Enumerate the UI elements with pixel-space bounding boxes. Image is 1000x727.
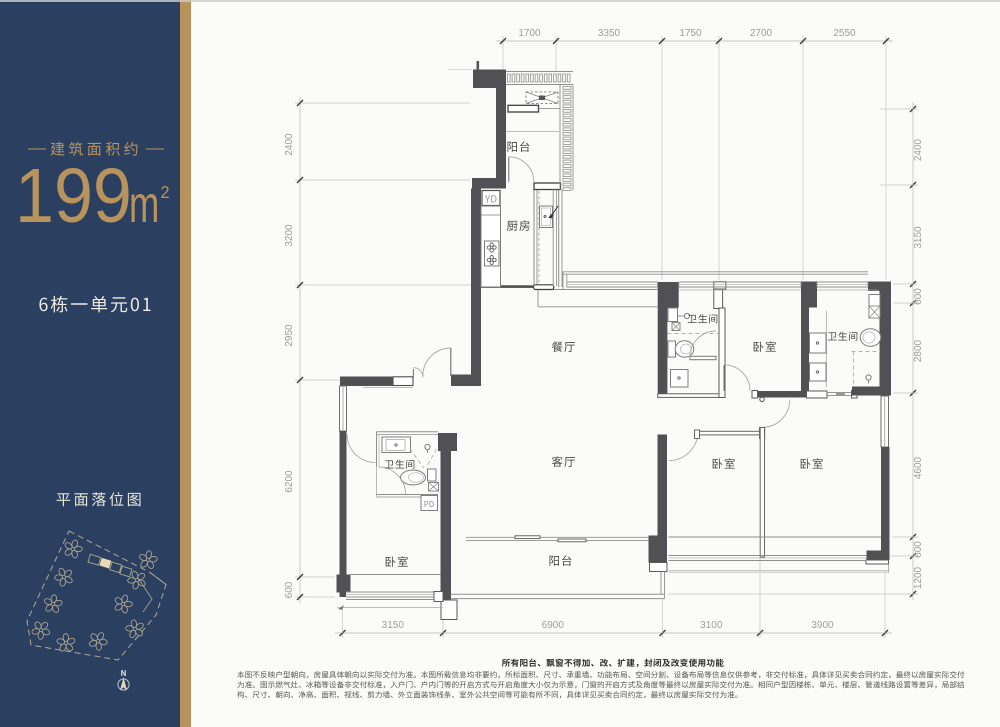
svg-text:2400: 2400 xyxy=(913,138,924,161)
svg-text:2800: 2800 xyxy=(913,339,924,362)
svg-text:2700: 2700 xyxy=(750,28,773,39)
svg-text:3100: 3100 xyxy=(700,620,723,631)
svg-text:6900: 6900 xyxy=(542,620,565,631)
svg-text:3350: 3350 xyxy=(598,28,621,39)
svg-text:1700: 1700 xyxy=(518,28,541,39)
svg-text:1750: 1750 xyxy=(679,28,702,39)
svg-text:3150: 3150 xyxy=(913,226,924,249)
svg-text:4600: 4600 xyxy=(913,456,924,479)
svg-text:600: 600 xyxy=(284,581,295,598)
svg-text:2400: 2400 xyxy=(284,133,295,156)
svg-text:600: 600 xyxy=(913,541,924,558)
svg-text:3200: 3200 xyxy=(284,224,295,247)
svg-text:600: 600 xyxy=(913,288,924,305)
svg-text:3150: 3150 xyxy=(382,620,405,631)
svg-text:6200: 6200 xyxy=(284,470,295,493)
svg-text:2550: 2550 xyxy=(833,28,856,39)
svg-text:2: 2 xyxy=(161,182,170,202)
svg-text:199: 199 xyxy=(15,152,132,239)
svg-text:m: m xyxy=(129,174,159,233)
svg-text:2950: 2950 xyxy=(284,324,295,347)
svg-text:1200: 1200 xyxy=(913,566,924,589)
svg-text:3900: 3900 xyxy=(811,620,834,631)
